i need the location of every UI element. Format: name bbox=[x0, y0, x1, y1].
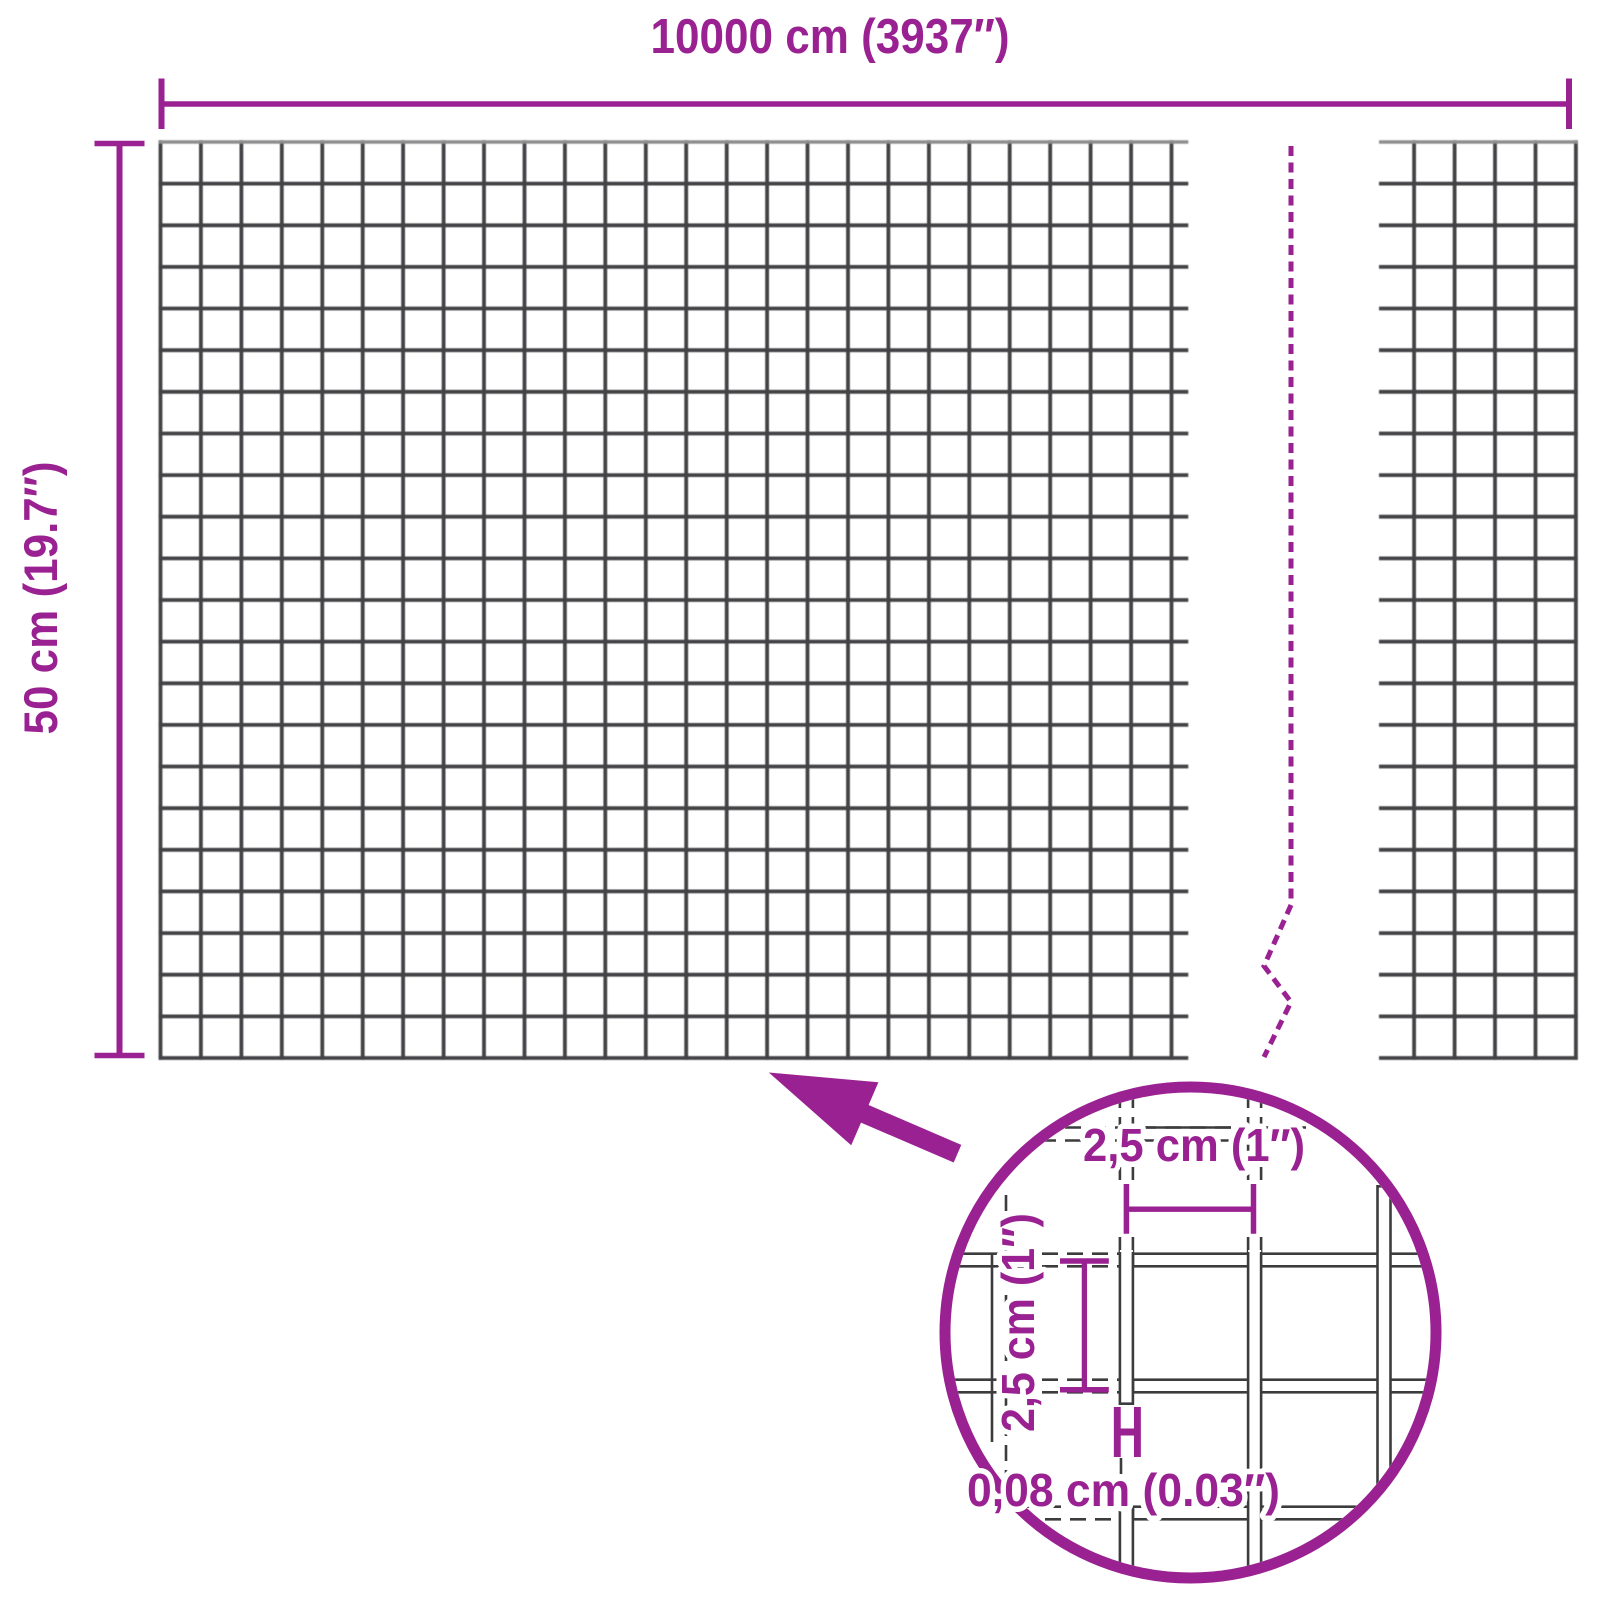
svg-text:0,08 cm (0.03″): 0,08 cm (0.03″) bbox=[967, 1464, 1280, 1516]
svg-text:2,5 cm (1″): 2,5 cm (1″) bbox=[1083, 1119, 1305, 1171]
svg-text:10000 cm (3937″): 10000 cm (3937″) bbox=[651, 10, 1010, 64]
svg-text:2,5 cm (1″): 2,5 cm (1″) bbox=[992, 1213, 1044, 1432]
svg-text:50 cm (19.7″): 50 cm (19.7″) bbox=[14, 462, 67, 735]
